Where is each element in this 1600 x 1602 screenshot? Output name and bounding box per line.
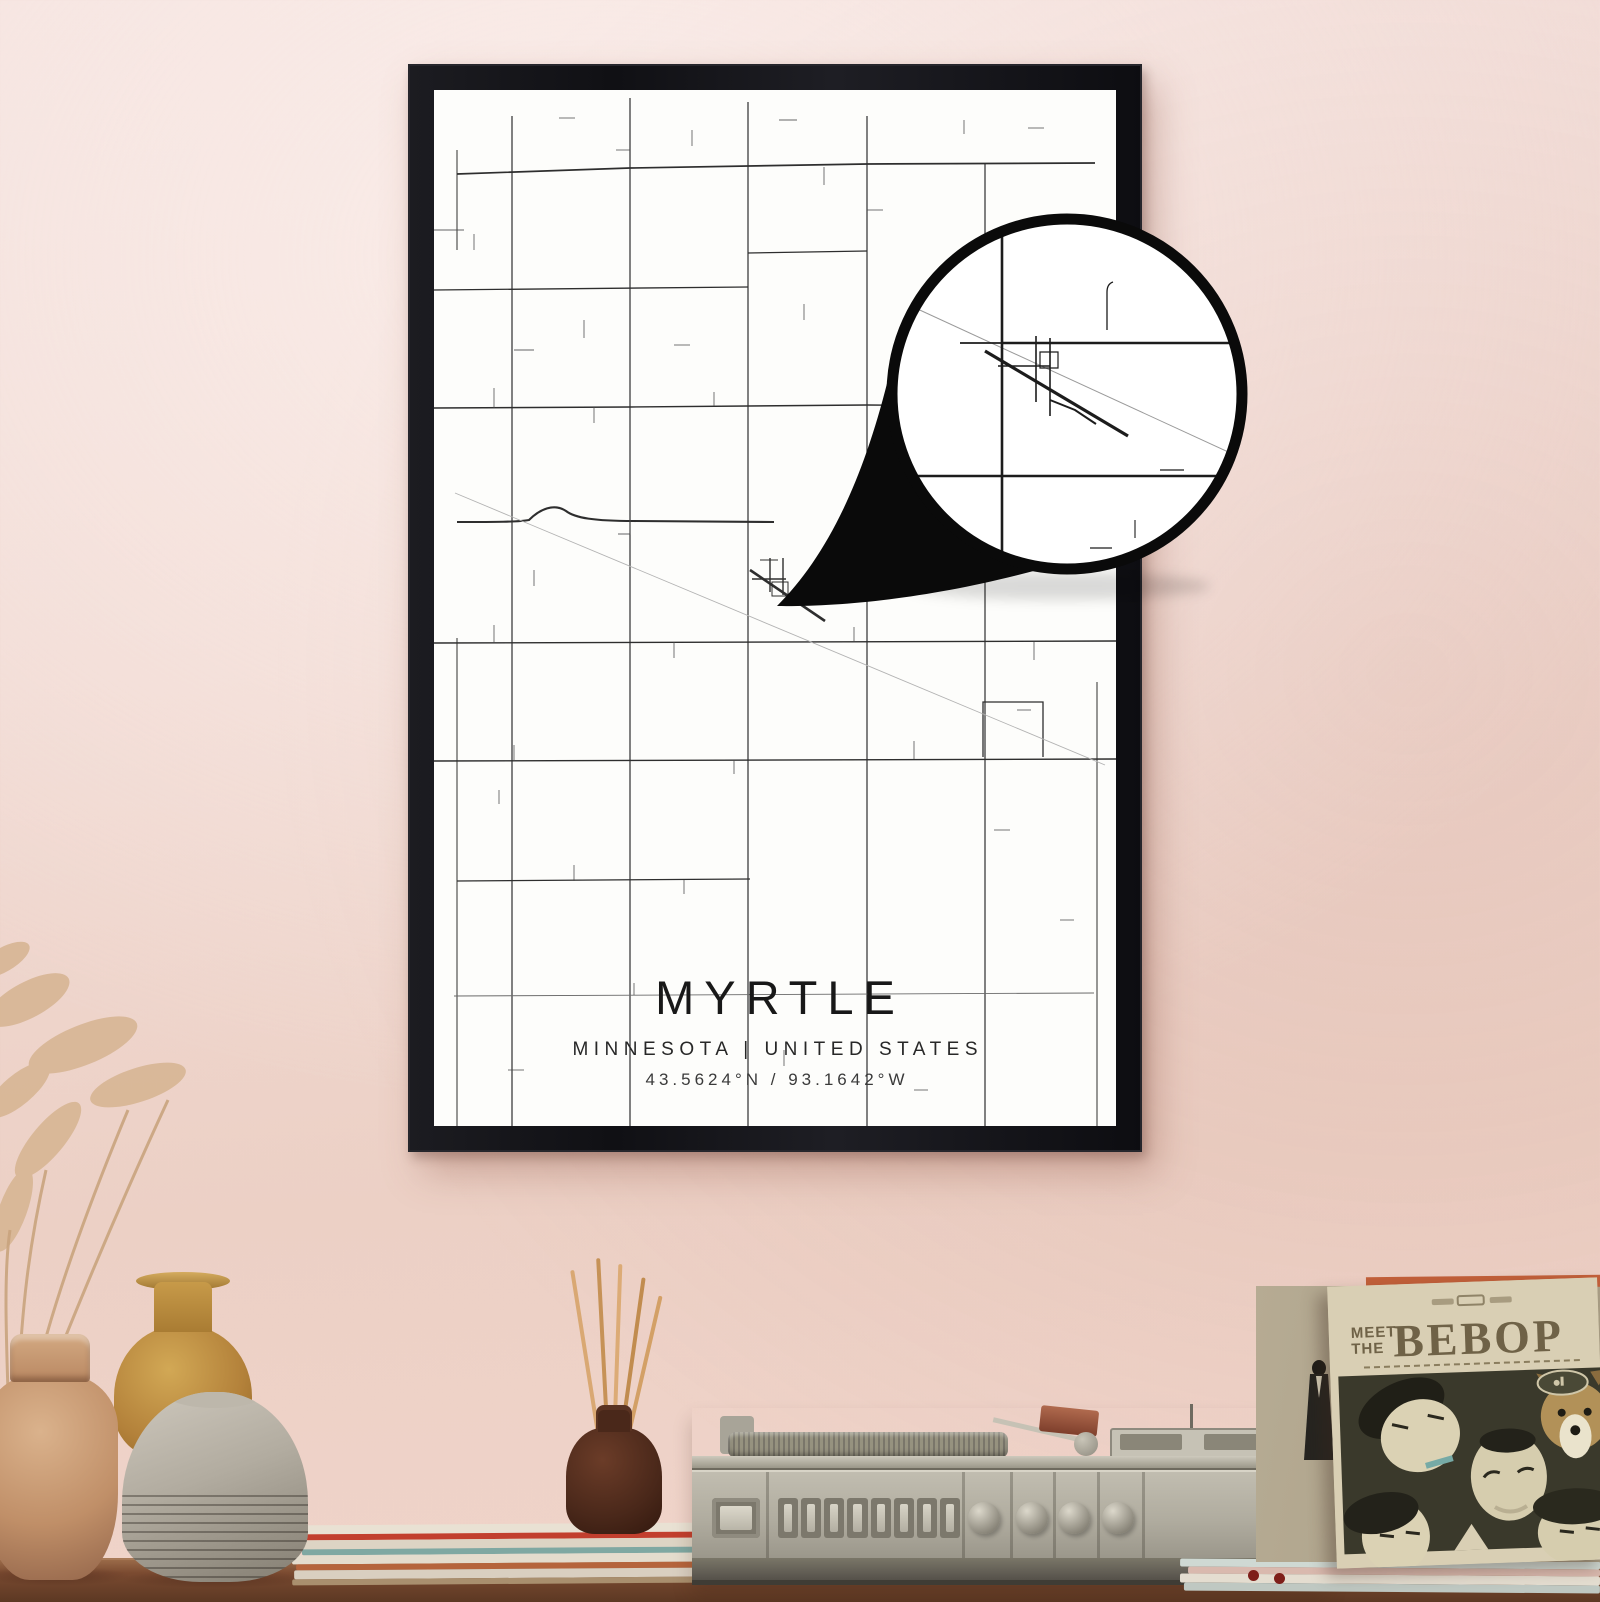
volume-knob — [968, 1502, 1000, 1534]
vase-neck — [154, 1282, 212, 1332]
panel-groove — [962, 1472, 965, 1560]
turntable-platter — [728, 1432, 1008, 1458]
preset-button — [778, 1498, 798, 1538]
record-sleeve-group: MEET THE BEBOP — [1256, 1268, 1600, 1600]
red-foot — [1274, 1573, 1285, 1584]
tuning-knob — [1058, 1502, 1090, 1534]
preset-button — [801, 1498, 821, 1538]
map-poster: MYRTLE MINNESOTA | UNITED STATES 43.5624… — [434, 90, 1116, 1126]
magazine-stack — [292, 1523, 706, 1586]
sleeve-word-the: THE — [1351, 1340, 1385, 1358]
panel-groove — [1097, 1472, 1100, 1560]
preset-button — [894, 1498, 914, 1538]
preset-button — [940, 1498, 960, 1538]
panel-groove — [1142, 1472, 1145, 1560]
tan-ceramic-vase — [0, 1374, 118, 1580]
sleeve-title: BEBOP — [1392, 1310, 1565, 1367]
preset-button-row — [778, 1498, 960, 1538]
record-player — [692, 1408, 1328, 1584]
tonearm-pivot — [1074, 1432, 1098, 1456]
button-face — [720, 1506, 752, 1530]
panel-groove — [766, 1472, 769, 1560]
bebop-record-sleeve: MEET THE BEBOP — [1327, 1277, 1600, 1568]
panel-groove — [1053, 1472, 1056, 1560]
player-deck-edge — [692, 1456, 1328, 1470]
hatch-window — [1120, 1434, 1182, 1450]
gray-ribbed-vase — [122, 1392, 308, 1582]
label-logo — [1537, 1370, 1588, 1396]
power-button — [712, 1498, 760, 1538]
preset-button — [917, 1498, 937, 1538]
player-front-panel — [692, 1470, 1328, 1560]
selector-knob — [1102, 1502, 1134, 1534]
preset-button — [824, 1498, 844, 1538]
tone-knob — [1016, 1502, 1048, 1534]
poster-caption: MYRTLE MINNESOTA | UNITED STATES 43.5624… — [434, 970, 1116, 1090]
reed-diffuser-bottle — [566, 1428, 662, 1534]
red-foot — [1248, 1570, 1259, 1581]
poster-coordinates: 43.5624°N / 93.1642°W — [434, 1070, 1116, 1090]
figure-head — [1312, 1360, 1326, 1376]
panel-groove — [1010, 1472, 1013, 1560]
preset-button — [847, 1498, 867, 1538]
poster-frame: MYRTLE MINNESOTA | UNITED STATES 43.5624… — [408, 64, 1142, 1152]
poster-subtitle: MINNESOTA | UNITED STATES — [434, 1039, 1116, 1061]
poster-title: MYRTLE — [434, 970, 1116, 1025]
sleeve-artwork: MEET THE BEBOP — [1327, 1277, 1600, 1568]
preset-button — [871, 1498, 891, 1538]
